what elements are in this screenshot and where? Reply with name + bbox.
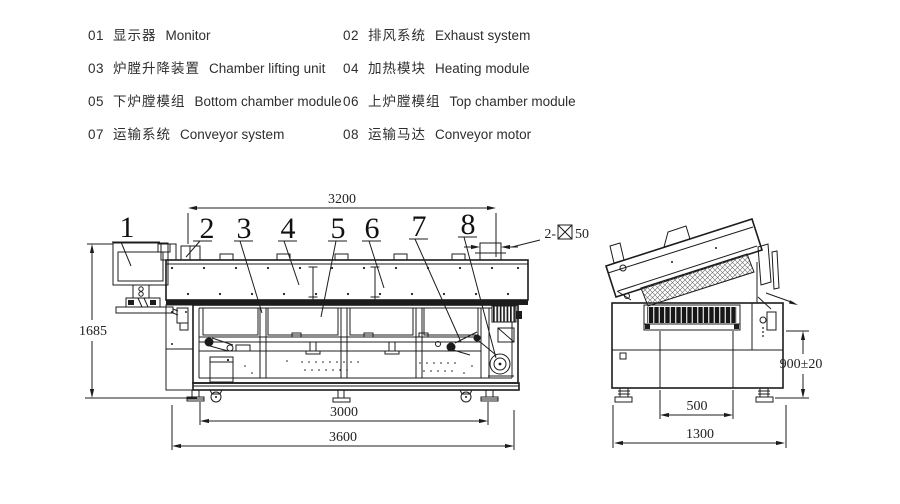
monitor: [113, 243, 188, 330]
base-frame: [187, 383, 519, 402]
part-label-4: 4: [281, 212, 296, 245]
heater-fins: [647, 307, 737, 323]
dim-500: 500: [660, 390, 733, 419]
dim-top-width-label: 3200: [328, 192, 356, 207]
front-view: 3200 1 2 3 4 5 6 7 8: [79, 192, 589, 450]
leveling-foot-center: [333, 390, 350, 402]
part-label-8: 8: [461, 208, 476, 241]
indicator-light: [760, 317, 766, 323]
caster-right: [460, 390, 472, 402]
part-label-1: 1: [120, 211, 135, 244]
part-label-2: 2: [200, 212, 215, 245]
screw-dots: [171, 267, 519, 295]
part-label-5: 5: [331, 212, 346, 245]
caster-left: [210, 390, 222, 402]
perforation-dots: [244, 360, 473, 374]
machine-drawing: 3200 1 2 3 4 5 6 7 8: [0, 0, 900, 504]
exhaust-port-annotation: 2- 50: [464, 225, 589, 249]
part-label-3: 3: [237, 212, 252, 245]
left-column: [166, 305, 193, 390]
exhaust-prefix-label: 2-: [544, 227, 556, 242]
dim-1685: 1685: [79, 244, 197, 398]
open-lid: [606, 219, 798, 309]
leveling-foot-right: [481, 390, 498, 401]
side-foot-right: [756, 388, 773, 402]
conveyor-roller-left: [205, 338, 214, 347]
leveling-foot-left: [187, 390, 204, 401]
heating-mesh: [641, 254, 754, 306]
dim-height-label: 1685: [79, 324, 107, 339]
leader-lines: [112, 237, 496, 358]
exhaust-stack-right: [480, 243, 501, 260]
lid-stay-arrow: [789, 300, 798, 305]
dim-conveyor-height-label: 900±20: [780, 357, 823, 372]
dim-3000: 3000: [200, 402, 488, 425]
part-label-7: 7: [412, 210, 427, 243]
lid-stop-bracket: [610, 243, 624, 263]
part-label-6: 6: [365, 212, 380, 245]
vent-grille: [492, 306, 516, 322]
side-body: [612, 303, 783, 402]
lower-cabinet: [193, 305, 522, 383]
dim-side-width-label: 1300: [686, 427, 714, 442]
exhaust-size-label: 50: [575, 227, 589, 242]
keyboard-tray: [116, 307, 173, 313]
side-view: 900±20 500 1300: [606, 219, 822, 448]
technical-drawing-page: 01 显示器 Monitor 02 排风系统 Exhaust system 03…: [0, 0, 900, 504]
side-foot-left: [615, 388, 632, 402]
dim-overall-length-label: 3600: [329, 430, 357, 445]
dim-side-feet-span-label: 500: [687, 399, 708, 414]
dim-feet-span-label: 3000: [330, 405, 358, 420]
